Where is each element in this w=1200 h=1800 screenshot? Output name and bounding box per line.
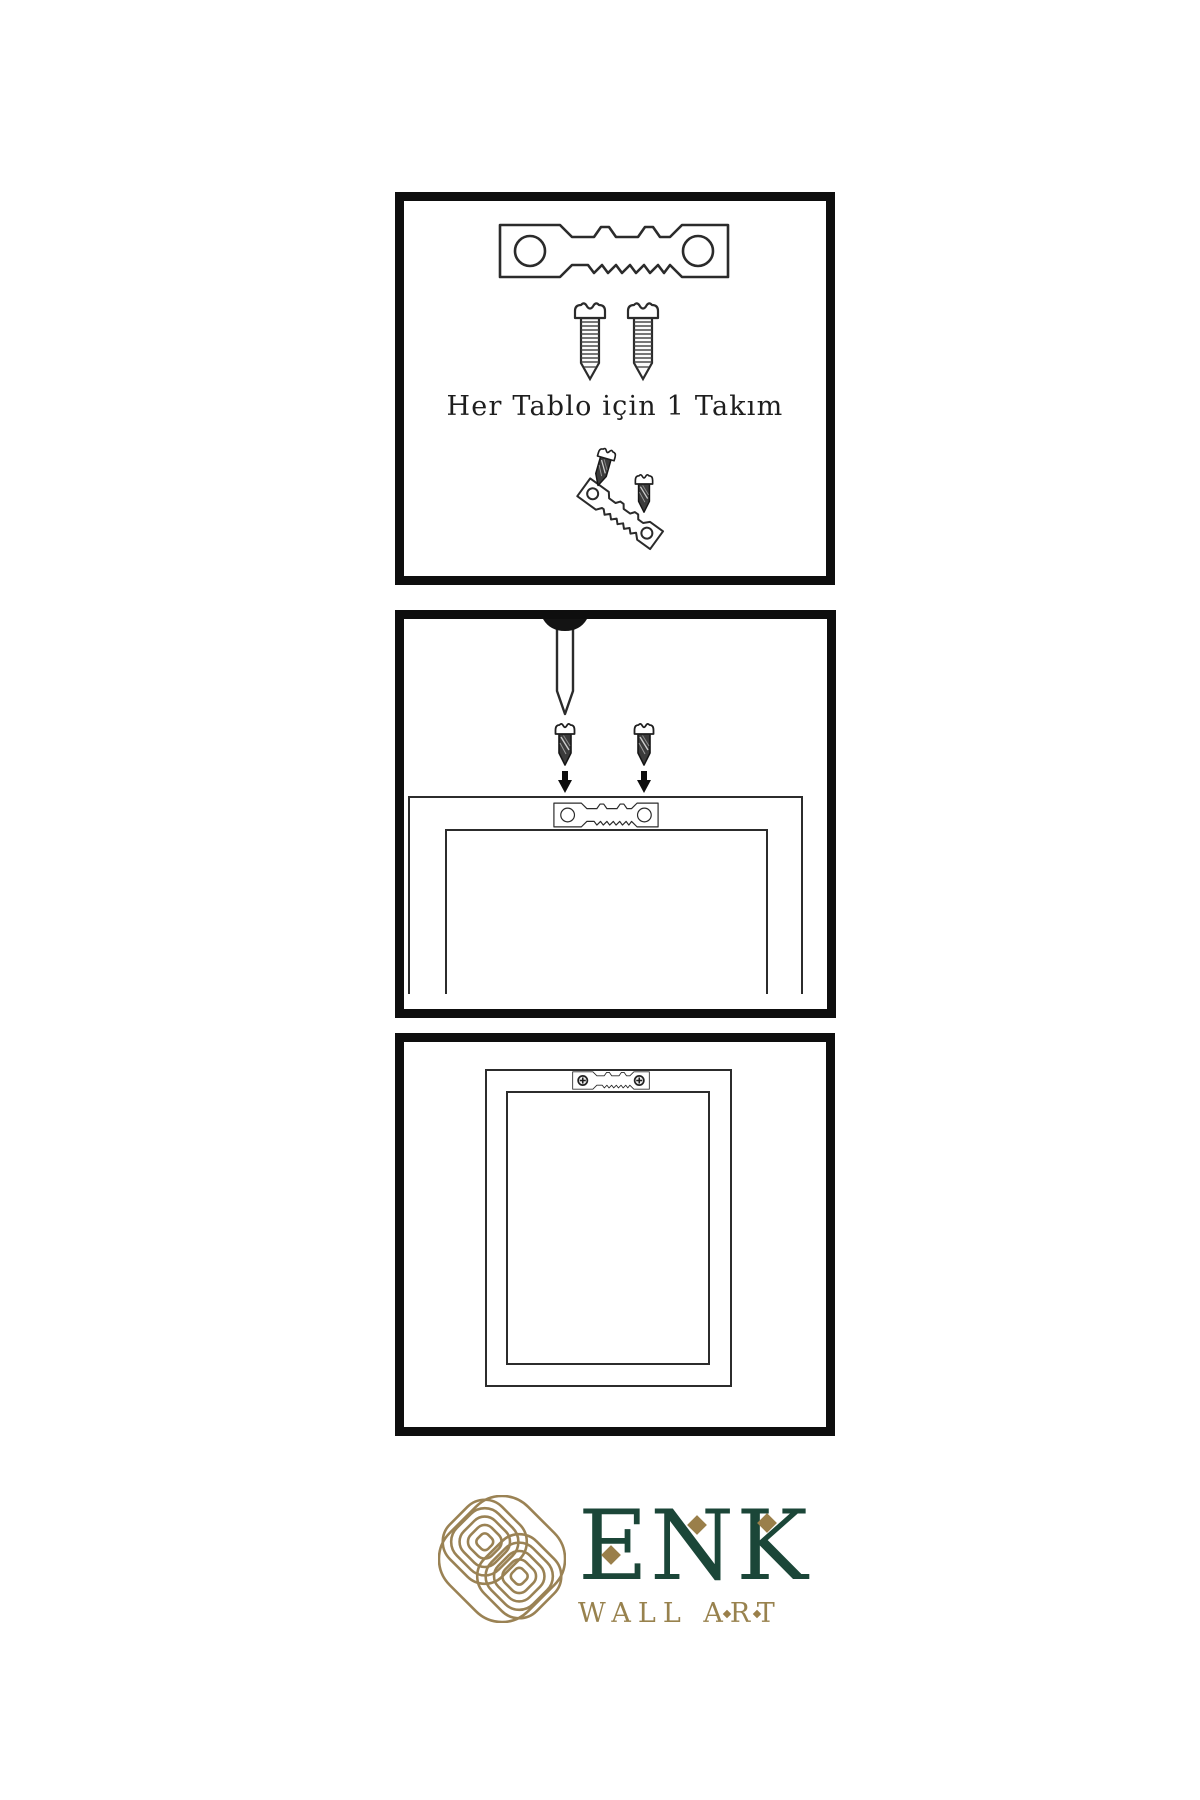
knot-logo-icon xyxy=(438,1492,566,1626)
instruction-sheet: Her Tablo için 1 Takım ENK WALL ART xyxy=(0,0,1200,1800)
sawtooth-hanger-mounted-icon xyxy=(572,1071,650,1090)
arrow-down-icon xyxy=(637,771,651,793)
screw-icon xyxy=(626,301,660,387)
step-panel-mounting xyxy=(395,610,836,1018)
frame-inner-outline xyxy=(506,1091,710,1365)
screw-icon xyxy=(633,722,655,768)
hanger-screw-assembly-icon xyxy=(576,447,691,557)
brand-tagline: WALL ART xyxy=(578,1598,810,1629)
sawtooth-hanger-icon xyxy=(553,802,659,828)
brand-logo-text: ENK WALL ART xyxy=(578,1494,810,1629)
brand-logo: ENK WALL ART xyxy=(438,1492,810,1629)
screw-icon xyxy=(573,301,607,387)
nail-icon xyxy=(543,619,587,717)
step-caption: Her Tablo için 1 Takım xyxy=(404,391,826,422)
step-panel-result xyxy=(395,1033,835,1436)
frame-inner-outline xyxy=(445,829,768,994)
arrow-down-icon xyxy=(558,771,572,793)
screw-icon xyxy=(554,722,576,768)
step-panel-hardware-kit: Her Tablo için 1 Takım xyxy=(395,192,835,585)
sawtooth-hanger-icon xyxy=(498,223,730,279)
